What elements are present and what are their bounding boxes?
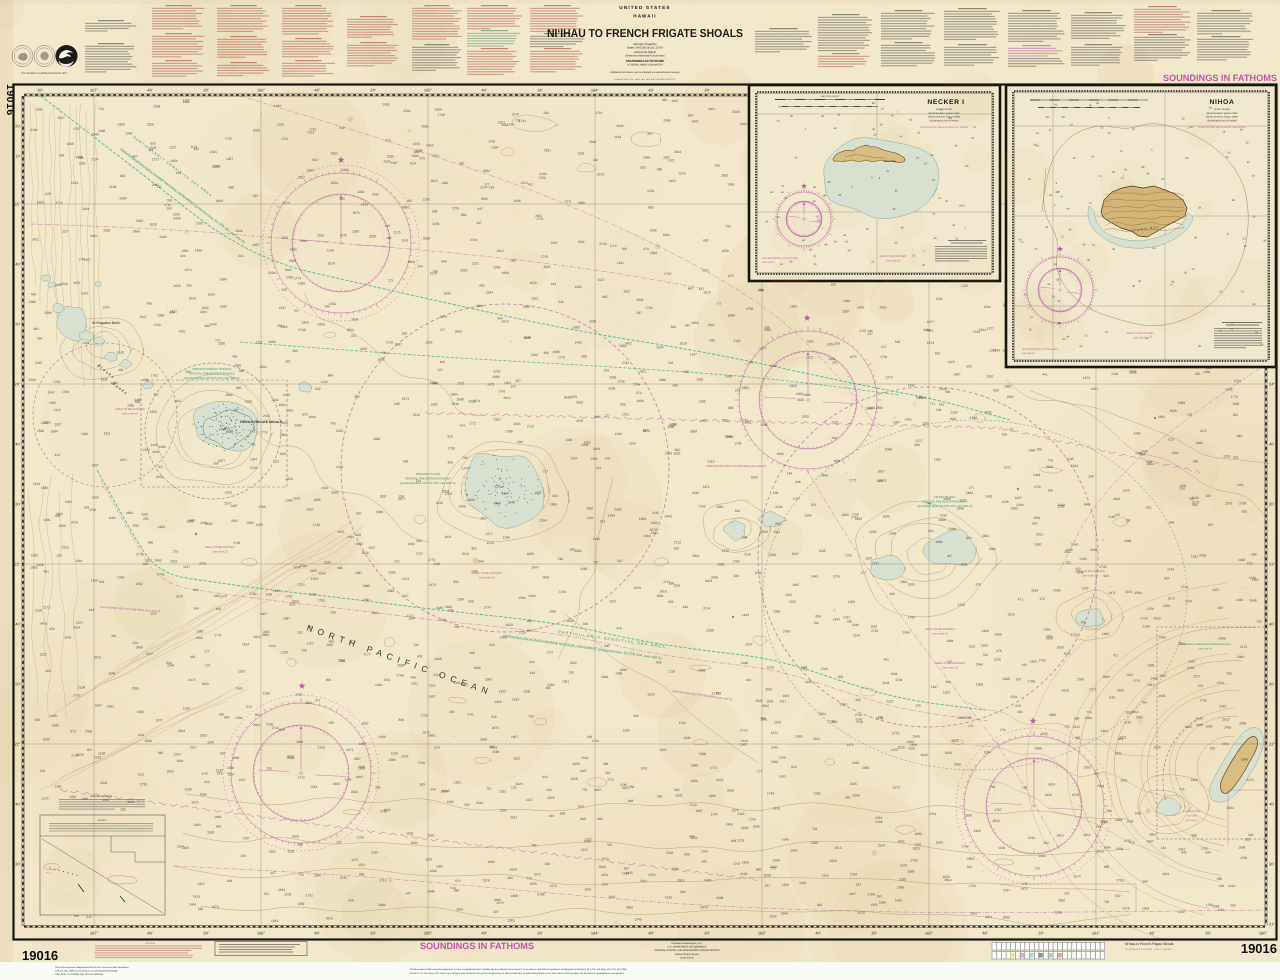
svg-text:2663: 2663 (879, 479, 886, 483)
svg-text:1803: 1803 (167, 770, 174, 774)
svg-text:2730: 2730 (140, 783, 147, 787)
svg-text:2284: 2284 (493, 266, 500, 270)
svg-text:2352: 2352 (331, 152, 338, 156)
svg-text:1152: 1152 (513, 756, 520, 760)
svg-text:2439: 2439 (318, 322, 325, 326)
svg-text:260: 260 (1017, 710, 1023, 714)
svg-text:2405: 2405 (182, 846, 189, 850)
svg-text:2169: 2169 (593, 447, 600, 451)
svg-text:2399: 2399 (245, 400, 252, 404)
svg-text:1685: 1685 (1232, 402, 1239, 406)
svg-text:1368: 1368 (935, 540, 942, 544)
svg-text:657: 657 (1094, 772, 1100, 776)
svg-text:777: 777 (716, 302, 722, 306)
svg-text:676: 676 (916, 704, 922, 708)
svg-text:2559: 2559 (427, 834, 434, 838)
svg-text:2221: 2221 (660, 748, 667, 752)
svg-text:1493: 1493 (575, 341, 582, 345)
svg-text:335: 335 (1217, 877, 1223, 881)
svg-text:1600: 1600 (141, 513, 148, 517)
svg-text:2693: 2693 (727, 789, 734, 793)
svg-text:20': 20' (203, 931, 208, 936)
svg-text:2493: 2493 (159, 235, 166, 239)
svg-text:2576: 2576 (401, 755, 408, 759)
svg-text:1156: 1156 (779, 756, 786, 760)
svg-text:2600: 2600 (842, 513, 849, 517)
svg-text:19016: 19016 (1241, 941, 1277, 956)
svg-text:2181: 2181 (55, 785, 62, 789)
svg-text:710: 710 (515, 118, 521, 122)
svg-text:150: 150 (876, 895, 882, 899)
svg-text:2405: 2405 (795, 734, 802, 738)
svg-text:2545: 2545 (136, 219, 143, 223)
svg-text:2401: 2401 (1135, 812, 1142, 816)
svg-text:1942: 1942 (725, 374, 732, 378)
svg-text:2431: 2431 (985, 495, 992, 499)
svg-text:251: 251 (811, 503, 817, 507)
svg-text:AREA TO BE AVOIDED: AREA TO BE AVOIDED (1127, 332, 1154, 335)
svg-text:2651: 2651 (269, 850, 276, 854)
svg-text:2667: 2667 (95, 703, 102, 707)
svg-text:2282: 2282 (1158, 415, 1165, 419)
svg-text:2528: 2528 (1062, 689, 1069, 693)
svg-text:1997: 1997 (783, 694, 790, 698)
svg-text:1610: 1610 (577, 804, 584, 808)
svg-text:40': 40' (1269, 802, 1274, 807)
svg-text:2011: 2011 (755, 571, 762, 575)
svg-text:150: 150 (240, 854, 246, 858)
svg-text:1911: 1911 (587, 516, 594, 520)
svg-text:2618: 2618 (773, 807, 780, 811)
svg-text:1708: 1708 (62, 390, 69, 394)
svg-text:30': 30' (37, 88, 42, 93)
svg-text:2384: 2384 (1237, 655, 1244, 659)
svg-text:199: 199 (549, 814, 555, 818)
svg-text:2711: 2711 (663, 580, 670, 584)
svg-text:160°: 160° (1259, 931, 1268, 936)
svg-text:2389: 2389 (157, 314, 164, 318)
svg-text:2076: 2076 (774, 721, 781, 725)
svg-text:40': 40' (147, 931, 152, 936)
svg-text:168: 168 (517, 440, 523, 444)
svg-text:2233: 2233 (432, 222, 439, 226)
svg-text:433: 433 (448, 609, 454, 613)
svg-text:131: 131 (856, 883, 862, 887)
svg-text:2077: 2077 (218, 459, 225, 463)
svg-text:628: 628 (220, 752, 226, 756)
svg-text:2192: 2192 (272, 398, 279, 402)
svg-text:848: 848 (359, 873, 365, 877)
svg-text:338: 338 (1074, 716, 1080, 720)
svg-text:2028: 2028 (369, 235, 376, 239)
svg-text:(see note D): (see note D) (762, 261, 775, 264)
svg-text:SOUNDINGS IN FATHOMS - SCALE 1: SOUNDINGS IN FATHOMS - SCALE 1:663,392 (1125, 948, 1172, 951)
svg-text:1982: 1982 (1185, 725, 1192, 729)
svg-text:2649: 2649 (1241, 758, 1248, 762)
svg-text:2661: 2661 (285, 268, 292, 272)
svg-text:1528: 1528 (671, 867, 678, 871)
svg-text:2527: 2527 (169, 145, 176, 149)
svg-text:2406: 2406 (974, 829, 981, 833)
svg-text:853: 853 (560, 812, 566, 816)
svg-text:20': 20' (704, 88, 709, 93)
svg-text:441: 441 (1042, 372, 1048, 376)
svg-text:1565: 1565 (49, 401, 56, 405)
svg-text:808: 808 (815, 614, 821, 618)
svg-text:2373: 2373 (989, 348, 996, 352)
svg-text:997: 997 (831, 283, 837, 287)
svg-text:2240: 2240 (436, 501, 443, 505)
svg-text:1000: 1000 (502, 271, 509, 275)
svg-text:1734: 1734 (559, 590, 566, 594)
svg-text:161: 161 (1066, 561, 1072, 565)
svg-text:1713: 1713 (609, 244, 616, 248)
svg-text:NIHOA: NIHOA (1210, 99, 1235, 106)
svg-text:2724: 2724 (91, 157, 98, 161)
svg-text:2502: 2502 (1007, 395, 1014, 399)
svg-text:1280: 1280 (50, 714, 57, 718)
svg-text:1870: 1870 (191, 801, 198, 805)
svg-text:2713: 2713 (690, 803, 697, 807)
svg-text:2637: 2637 (306, 508, 313, 512)
svg-text:2210: 2210 (1008, 612, 1015, 616)
svg-text:2160: 2160 (839, 702, 846, 706)
svg-text:499: 499 (59, 153, 65, 157)
svg-text:2453: 2453 (614, 508, 621, 512)
svg-text:2126: 2126 (250, 466, 257, 470)
svg-text:408: 408 (581, 355, 587, 359)
svg-text:457: 457 (85, 258, 91, 262)
svg-text:21°: 21° (1269, 922, 1275, 927)
svg-text:295: 295 (454, 625, 460, 629)
svg-text:2463: 2463 (705, 579, 712, 583)
svg-text:1962: 1962 (181, 249, 188, 253)
svg-text:2059: 2059 (1003, 916, 1010, 920)
svg-text:2306: 2306 (285, 499, 292, 503)
svg-text:THE NATION'S CHARTMAKER SINCE: THE NATION'S CHARTMAKER SINCE 1807 (21, 72, 68, 75)
svg-text:2524: 2524 (819, 712, 826, 716)
svg-text:St Rogatien Bank: St Rogatien Bank (92, 321, 120, 325)
svg-text:1181: 1181 (1109, 696, 1116, 700)
svg-text:SOUNDINGS IN FATHOMS: SOUNDINGS IN FATHOMS (1207, 120, 1237, 123)
svg-text:2541: 2541 (828, 357, 835, 361)
svg-text:138: 138 (1022, 786, 1028, 790)
svg-text:2673: 2673 (440, 315, 447, 319)
svg-text:2851: 2851 (281, 421, 288, 425)
svg-text:161°: 161° (1092, 931, 1101, 936)
svg-text:2548: 2548 (771, 760, 778, 764)
svg-text:2609: 2609 (1057, 645, 1064, 649)
svg-text:347: 347 (234, 408, 240, 412)
svg-text:1884: 1884 (51, 430, 58, 434)
svg-text:2506: 2506 (384, 159, 391, 163)
svg-text:Scale 1:663,392 at Lat. 22°00': Scale 1:663,392 at Lat. 22°00' (627, 47, 663, 50)
svg-text:726: 726 (1048, 459, 1054, 463)
svg-text:1498: 1498 (1028, 448, 1035, 452)
svg-text:1788: 1788 (506, 430, 513, 434)
svg-text:40': 40' (15, 622, 20, 627)
svg-text:1802: 1802 (1083, 766, 1090, 770)
svg-text:597: 597 (1164, 576, 1170, 580)
svg-text:243: 243 (356, 533, 362, 537)
svg-text:791: 791 (812, 827, 818, 831)
svg-text:1231: 1231 (1171, 451, 1178, 455)
svg-text:1878: 1878 (207, 741, 214, 745)
svg-text:2875: 2875 (281, 236, 288, 240)
svg-text:171: 171 (605, 414, 611, 418)
svg-text:1194: 1194 (1162, 872, 1169, 876)
svg-text:1298: 1298 (263, 692, 270, 696)
svg-text:343: 343 (1248, 833, 1254, 837)
svg-text:1252: 1252 (1178, 910, 1185, 914)
svg-text:2890: 2890 (1117, 689, 1124, 693)
svg-text:2748: 2748 (298, 328, 305, 332)
svg-text:2334: 2334 (117, 576, 124, 580)
svg-text:1710: 1710 (379, 878, 386, 882)
svg-text:2125: 2125 (737, 839, 744, 843)
svg-text:1819: 1819 (286, 408, 293, 412)
svg-text:449: 449 (411, 675, 417, 679)
svg-text:2513: 2513 (462, 552, 469, 556)
svg-text:1776: 1776 (876, 716, 883, 720)
svg-text:859: 859 (453, 580, 459, 584)
svg-text:2167: 2167 (510, 259, 517, 263)
svg-text:2764: 2764 (929, 812, 936, 816)
svg-text:535: 535 (945, 390, 951, 394)
svg-text:1807: 1807 (671, 99, 678, 103)
svg-text:1715: 1715 (1097, 850, 1104, 854)
svg-text:1210: 1210 (487, 541, 494, 545)
svg-text:1212: 1212 (321, 380, 328, 384)
svg-text:1597: 1597 (428, 695, 435, 699)
svg-text:507: 507 (1208, 523, 1214, 527)
svg-text:1940: 1940 (1236, 598, 1243, 602)
svg-text:2330: 2330 (101, 378, 108, 382)
svg-text:1852: 1852 (586, 507, 593, 511)
svg-text:676: 676 (1016, 704, 1022, 708)
svg-text:788: 788 (462, 456, 468, 460)
svg-text:208: 208 (1088, 474, 1094, 478)
svg-text:955: 955 (329, 721, 335, 725)
svg-text:137: 137 (336, 840, 342, 844)
svg-text:867: 867 (685, 323, 691, 327)
svg-text:2898: 2898 (1239, 722, 1246, 726)
svg-text:626: 626 (293, 349, 299, 353)
svg-text:2003: 2003 (442, 489, 449, 493)
svg-text:2079: 2079 (497, 901, 504, 905)
svg-text:761: 761 (1113, 654, 1119, 658)
svg-text:1494: 1494 (742, 613, 749, 617)
svg-text:2174: 2174 (703, 606, 710, 610)
svg-text:2428: 2428 (1238, 558, 1245, 562)
svg-text:2504: 2504 (692, 554, 699, 558)
svg-text:2576: 2576 (71, 520, 78, 524)
svg-text:2807: 2807 (523, 305, 530, 309)
svg-text:1595: 1595 (753, 825, 760, 829)
svg-text:1065: 1065 (814, 791, 821, 795)
svg-text:2193: 2193 (379, 735, 386, 739)
svg-text:2408: 2408 (173, 217, 180, 221)
svg-text:(see note D): (see note D) (932, 631, 947, 635)
svg-text:2760: 2760 (962, 844, 969, 848)
svg-text:20': 20' (871, 931, 876, 936)
svg-text:2089: 2089 (1136, 715, 1143, 719)
svg-text:2220: 2220 (62, 545, 69, 549)
svg-text:1600: 1600 (145, 739, 152, 743)
svg-text:1749: 1749 (634, 918, 641, 922)
svg-text:1829: 1829 (827, 343, 834, 347)
svg-text:2690: 2690 (441, 789, 448, 793)
svg-text:2581: 2581 (363, 598, 370, 602)
svg-text:1589: 1589 (235, 716, 242, 720)
svg-text:2073: 2073 (492, 726, 499, 730)
svg-text:1396: 1396 (593, 537, 600, 541)
svg-text:2357: 2357 (92, 463, 99, 467)
svg-text:2173: 2173 (283, 201, 290, 205)
svg-text:1075: 1075 (102, 306, 109, 310)
svg-text:2466: 2466 (1196, 441, 1203, 445)
svg-text:477: 477 (969, 486, 975, 490)
svg-text:1774: 1774 (294, 277, 301, 281)
svg-text:2443: 2443 (1033, 473, 1040, 477)
svg-text:SPECIAL PRESERVATION AREA: SPECIAL PRESERVATION AREA (922, 500, 967, 504)
svg-text:1945: 1945 (811, 574, 818, 578)
svg-text:2025: 2025 (253, 129, 260, 133)
svg-text:277: 277 (440, 328, 446, 332)
svg-text:1353: 1353 (382, 103, 389, 107)
svg-text:522: 522 (282, 288, 288, 292)
svg-text:261: 261 (193, 588, 199, 592)
svg-text:2480: 2480 (659, 378, 666, 382)
svg-text:1510: 1510 (1217, 908, 1224, 912)
svg-text:1608: 1608 (1238, 845, 1245, 849)
svg-text:289: 289 (603, 762, 609, 766)
svg-text:1166: 1166 (673, 583, 680, 587)
svg-text:165°: 165° (424, 931, 433, 936)
svg-text:327: 327 (403, 594, 409, 598)
svg-text:22°: 22° (14, 742, 20, 747)
svg-text:2866: 2866 (378, 903, 385, 907)
svg-text:2225: 2225 (493, 369, 500, 373)
svg-text:(see note D): (see note D) (942, 665, 957, 669)
svg-text:445: 445 (449, 710, 455, 714)
svg-text:402: 402 (935, 351, 941, 355)
svg-text:40': 40' (1269, 442, 1274, 447)
svg-text:2505: 2505 (732, 110, 739, 114)
svg-text:10': 10' (15, 154, 20, 159)
svg-text:580: 580 (684, 853, 690, 857)
svg-text:2338: 2338 (716, 896, 723, 900)
svg-text:541: 541 (264, 892, 270, 896)
svg-text:1599: 1599 (1055, 910, 1062, 914)
svg-text:299: 299 (936, 408, 942, 412)
svg-text:352: 352 (255, 713, 261, 717)
svg-text:2611: 2611 (985, 915, 992, 919)
svg-text:1700: 1700 (845, 553, 852, 557)
svg-text:2048: 2048 (427, 890, 434, 894)
svg-text:1428: 1428 (900, 864, 907, 868)
svg-text:2865: 2865 (234, 363, 241, 367)
svg-text:1431: 1431 (908, 383, 915, 387)
svg-text:530: 530 (895, 340, 901, 344)
svg-text:2276: 2276 (219, 595, 226, 599)
svg-text:1893: 1893 (857, 306, 864, 310)
svg-text:293: 293 (78, 156, 84, 160)
svg-text:302: 302 (817, 903, 823, 907)
svg-text:339: 339 (945, 680, 951, 684)
svg-text:2843: 2843 (1130, 371, 1137, 375)
svg-text:2099: 2099 (153, 105, 160, 109)
svg-text:1804: 1804 (663, 233, 670, 237)
svg-text:(see note D): (see note D) (479, 575, 494, 579)
svg-text:2294: 2294 (1046, 637, 1053, 641)
svg-text:899: 899 (993, 388, 999, 392)
svg-text:451: 451 (232, 355, 238, 359)
svg-text:1390: 1390 (274, 104, 281, 108)
svg-text:2008: 2008 (589, 140, 596, 144)
svg-text:616: 616 (216, 607, 222, 611)
svg-text:1615: 1615 (193, 895, 200, 899)
svg-text:20': 20' (1269, 502, 1274, 507)
svg-text:1710: 1710 (595, 111, 602, 115)
svg-text:2116: 2116 (429, 684, 436, 688)
svg-text:760: 760 (1106, 809, 1112, 813)
svg-text:2085: 2085 (916, 395, 923, 399)
svg-text:1544: 1544 (1126, 820, 1133, 824)
svg-text:1387: 1387 (226, 157, 233, 161)
svg-text:2236: 2236 (608, 386, 615, 390)
svg-text:1584: 1584 (1227, 806, 1234, 810)
svg-text:833: 833 (728, 406, 734, 410)
svg-text:1637: 1637 (81, 292, 88, 296)
svg-text:540: 540 (1192, 503, 1198, 507)
svg-text:40': 40' (1269, 622, 1274, 627)
svg-text:2734: 2734 (850, 872, 857, 876)
svg-text:2214: 2214 (853, 634, 860, 638)
svg-text:2239: 2239 (387, 155, 394, 159)
svg-text:2119: 2119 (708, 459, 715, 463)
svg-text:2328: 2328 (567, 619, 574, 623)
svg-text:2261: 2261 (200, 310, 207, 314)
svg-text:Niʻihau to French Frigate Shoa: Niʻihau to French Frigate Shoals (1125, 942, 1174, 946)
svg-text:261: 261 (939, 403, 945, 407)
svg-text:1373: 1373 (212, 905, 219, 909)
svg-text:1268: 1268 (698, 400, 705, 404)
svg-text:40': 40' (314, 931, 319, 936)
svg-text:1996: 1996 (879, 900, 886, 904)
svg-text:1742: 1742 (749, 818, 756, 822)
svg-text:2609: 2609 (704, 879, 711, 883)
svg-text:2790: 2790 (89, 508, 96, 512)
svg-text:191: 191 (381, 351, 387, 355)
svg-text:SHIP REPORTING SYSTEM AREA (se: SHIP REPORTING SYSTEM AREA (see note D) (706, 464, 766, 468)
svg-text:1928: 1928 (670, 422, 677, 426)
svg-text:2602: 2602 (253, 723, 260, 727)
svg-text:610: 610 (138, 773, 144, 777)
svg-text:2443: 2443 (665, 515, 672, 519)
svg-text:1749: 1749 (645, 306, 652, 310)
svg-text:937: 937 (624, 866, 630, 870)
svg-text:1945: 1945 (1158, 694, 1165, 698)
svg-text:1141: 1141 (345, 777, 352, 781)
svg-text:301: 301 (34, 327, 40, 331)
svg-text:1672: 1672 (585, 837, 592, 841)
svg-text:1693: 1693 (510, 868, 517, 872)
svg-text:797: 797 (593, 560, 599, 564)
svg-text:1085: 1085 (615, 672, 622, 676)
svg-text:1977: 1977 (759, 347, 766, 351)
svg-text:1748: 1748 (438, 113, 445, 117)
